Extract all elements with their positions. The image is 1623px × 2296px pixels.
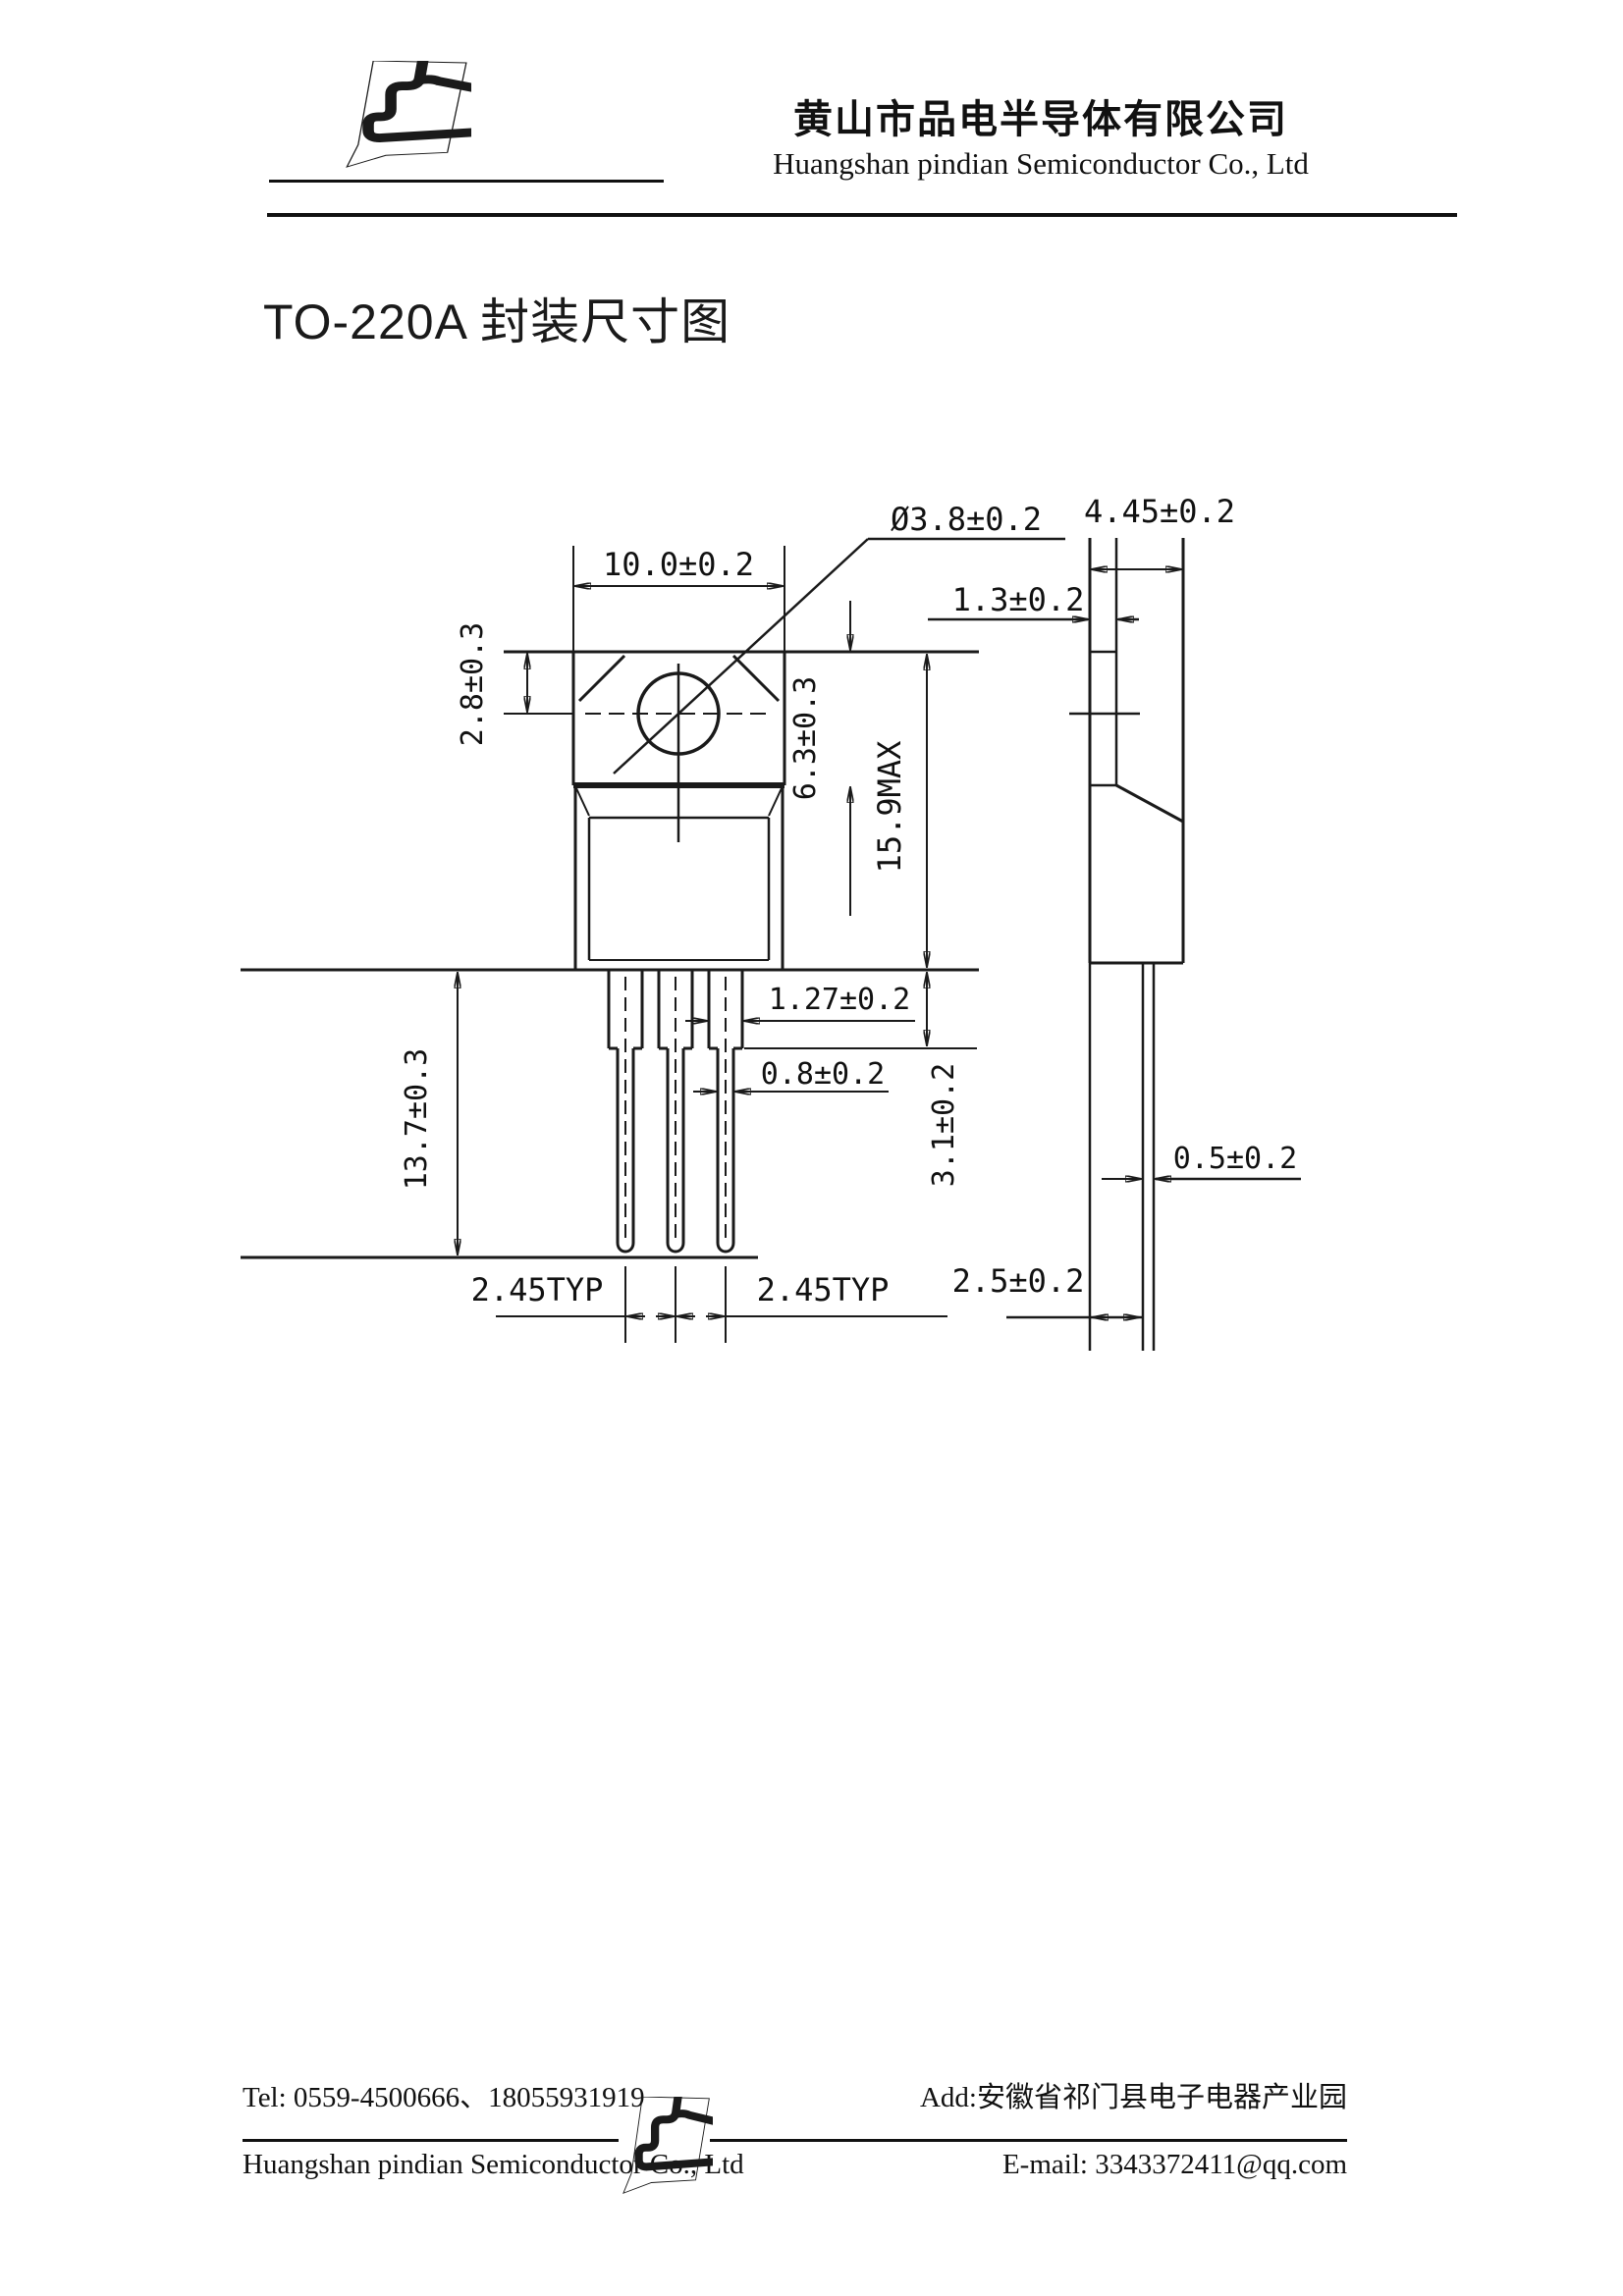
footer-rule-right bbox=[710, 2139, 1347, 2142]
dim-hole-diameter: Ø3.8±0.2 bbox=[891, 501, 1042, 538]
package-dimension-drawing: 10.0±0.2 Ø3.8±0.2 4.45±0.2 1.3±0.2 2.8±0… bbox=[196, 432, 1434, 1423]
dim-lead-width: 0.8±0.2 bbox=[761, 1057, 885, 1092]
footer-logo-icon bbox=[622, 2097, 713, 2195]
front-view bbox=[241, 652, 979, 1257]
dim-hole-center-offset: 2.8±0.3 bbox=[456, 622, 490, 746]
dim-lead-pitch-2: 2.45TYP bbox=[757, 1271, 890, 1308]
leads-front bbox=[609, 970, 742, 1252]
company-name-en: Huangshan pindian Semiconductor Co., Ltd bbox=[687, 145, 1394, 183]
header-rule bbox=[267, 213, 1457, 217]
header: 黄山市品电半导体有限公司 Huangshan pindian Semicondu… bbox=[687, 96, 1394, 183]
dim-tab-height: 6.3±0.3 bbox=[788, 676, 823, 800]
footer-tel: Tel: 0559-4500666、18055931919 bbox=[243, 2081, 645, 2114]
logo-underline bbox=[269, 180, 664, 183]
side-view bbox=[1069, 538, 1183, 1351]
dim-lead-pitch-1: 2.45TYP bbox=[471, 1271, 604, 1308]
dim-body-width-side: 4.45±0.2 bbox=[1084, 493, 1235, 530]
company-logo-icon bbox=[346, 61, 471, 169]
dim-lead-shoulder-width: 1.27±0.2 bbox=[769, 983, 911, 1017]
datasheet-page: { "header": { "company_cn": "黄山市品电半导体有限公… bbox=[0, 0, 1623, 2296]
dim-lead-thickness: 0.5±0.2 bbox=[1173, 1142, 1297, 1176]
dim-lead-length: 13.7±0.3 bbox=[400, 1048, 434, 1191]
company-name-cn: 黄山市品电半导体有限公司 bbox=[687, 96, 1394, 143]
dim-tab-width: 10.0±0.2 bbox=[603, 546, 754, 583]
footer-rule-left bbox=[243, 2139, 619, 2142]
dim-tab-thickness: 1.3±0.2 bbox=[952, 581, 1085, 618]
dim-lead-center-offset: 2.5±0.2 bbox=[952, 1262, 1085, 1300]
dimensions: 10.0±0.2 Ø3.8±0.2 4.45±0.2 1.3±0.2 2.8±0… bbox=[400, 493, 1301, 1343]
page-title: TO-220A 封装尺寸图 bbox=[263, 283, 730, 353]
dim-shoulder-height: 3.1±0.2 bbox=[927, 1063, 961, 1187]
footer-address: Add:安徽省祁门县电子电器产业园 bbox=[920, 2081, 1347, 2114]
footer-email: E-mail: 3343372411@qq.com bbox=[1002, 2148, 1347, 2181]
dim-overall-height: 15.9MAX bbox=[871, 741, 908, 874]
